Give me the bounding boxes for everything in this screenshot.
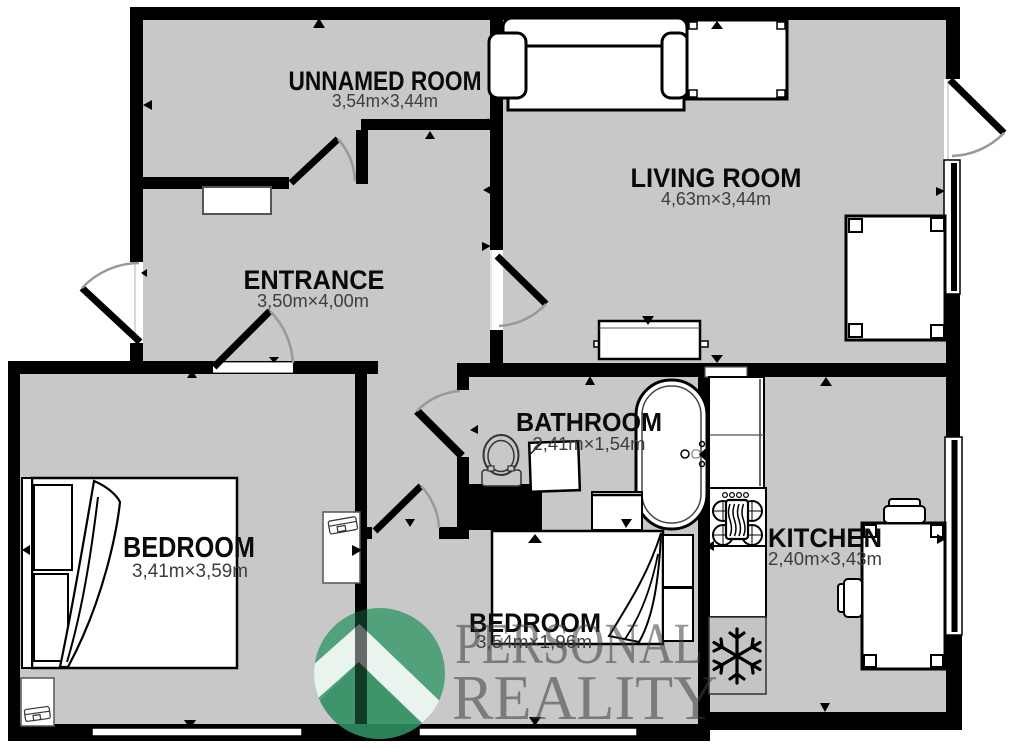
svg-text:4,63m×3,44m: 4,63m×3,44m	[661, 188, 771, 209]
svg-text:2,41m×1,54m: 2,41m×1,54m	[533, 434, 646, 454]
svg-text:3,41m×3,59m: 3,41m×3,59m	[132, 561, 248, 582]
svg-text:REALITY: REALITY	[452, 663, 718, 733]
svg-text:BATHROOM: BATHROOM	[516, 407, 662, 437]
svg-text:BEDROOM: BEDROOM	[123, 532, 255, 564]
svg-text:3,54m×3,44m: 3,54m×3,44m	[332, 90, 438, 111]
svg-text:2,40m×3,43m: 2,40m×3,43m	[768, 549, 882, 569]
svg-text:3,50m×4,00m: 3,50m×4,00m	[257, 290, 369, 311]
